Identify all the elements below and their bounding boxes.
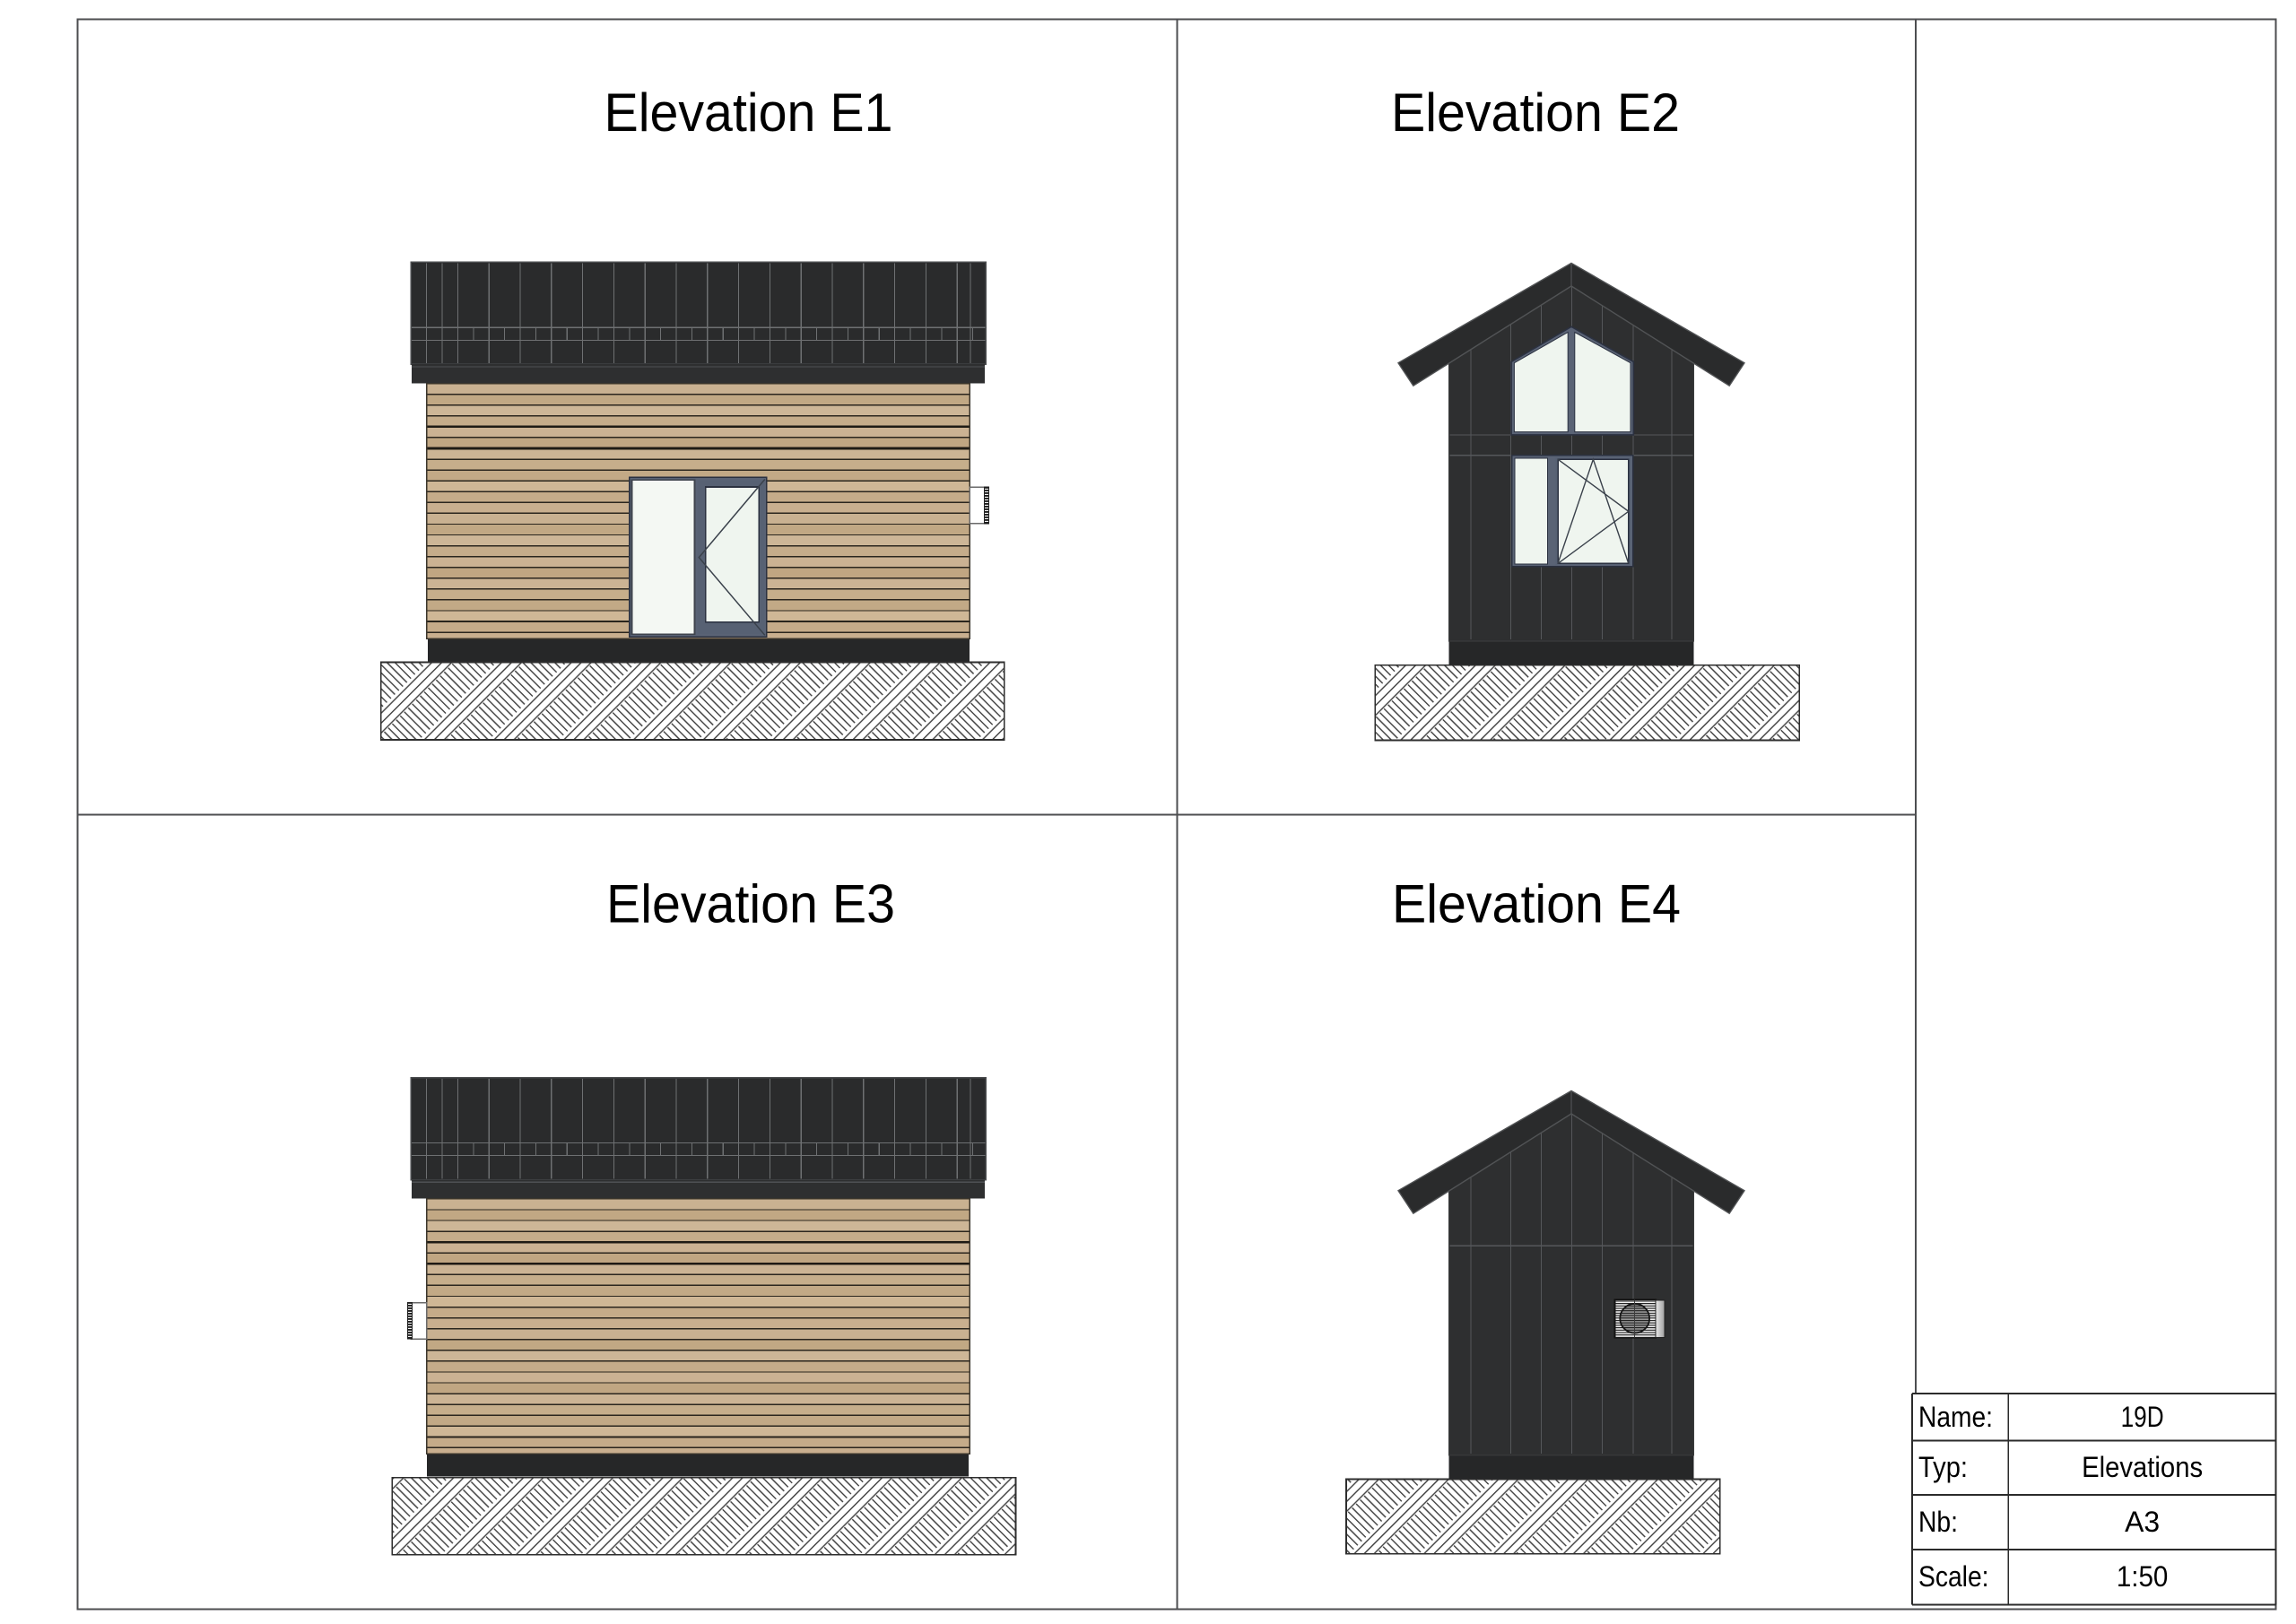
svg-text:Typ:: Typ:: [1918, 1451, 1968, 1483]
svg-text:Elevation E1: Elevation E1: [604, 83, 893, 143]
svg-text:Elevation E4: Elevation E4: [1392, 873, 1681, 934]
svg-text:19D: 19D: [2121, 1401, 2164, 1433]
svg-text:Scale:: Scale:: [1918, 1560, 1989, 1593]
svg-text:A3: A3: [2125, 1506, 2160, 1538]
svg-text:Elevations: Elevations: [2082, 1451, 2203, 1483]
svg-text:Name:: Name:: [1918, 1401, 1993, 1433]
svg-text:1:50: 1:50: [2117, 1560, 2169, 1593]
svg-text:Elevation E2: Elevation E2: [1391, 83, 1680, 143]
svg-text:Elevation E3: Elevation E3: [606, 873, 895, 934]
svg-text:Nb:: Nb:: [1918, 1506, 1958, 1538]
